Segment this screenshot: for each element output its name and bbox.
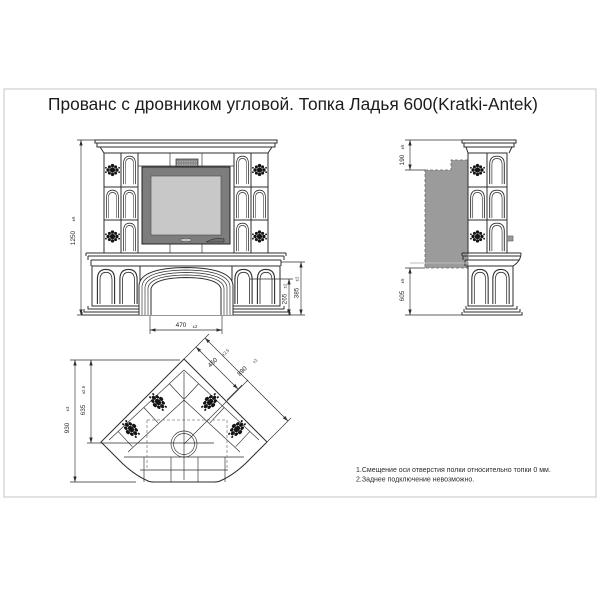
- side-lower-body: [462, 266, 522, 315]
- dim-value: 470: [176, 322, 187, 329]
- dim-value: 1250: [70, 230, 77, 245]
- dim-value: 265: [282, 293, 289, 304]
- front-lower-body: [82, 266, 290, 315]
- rosette-icon: [252, 164, 267, 176]
- side-crown-molding: [462, 140, 516, 153]
- front-crown-molding: [95, 140, 277, 153]
- dim-value: 930: [64, 422, 71, 433]
- note-line: 1.Смещение оси отверстия полки относител…: [356, 467, 551, 474]
- hidden-firebox-mass: [425, 160, 468, 268]
- rosette-icon: [252, 230, 267, 242]
- dim-value: 385: [294, 287, 301, 298]
- dim-arch-springer: 265 ±2: [250, 279, 293, 315]
- dim-value: 190: [399, 154, 406, 165]
- arch-niche-icon: [123, 223, 135, 251]
- dim-front-height: 1250 ±5: [70, 140, 95, 315]
- notes-block: 1.Смещение оси отверстия полки относител…: [356, 467, 551, 484]
- arch-niche-icon: [235, 269, 252, 304]
- mantel-shelf: [86, 253, 286, 266]
- dim-base-height: 605 ±5: [399, 268, 462, 315]
- rosette-icon: [105, 164, 120, 176]
- dim-tolerance: ±2: [251, 357, 258, 364]
- dim-tolerance: ±2: [193, 324, 198, 329]
- arch-niche-icon: [120, 269, 137, 304]
- dim-tolerance: ±3: [65, 406, 70, 411]
- side-upper-column: [468, 153, 513, 253]
- side-view: 190 ±5 605 ±5: [399, 140, 522, 315]
- dim-tolerance: ±2.5: [81, 385, 86, 394]
- arch-niche-icon: [106, 190, 118, 218]
- vent-grille: [176, 159, 198, 167]
- dim-tolerance: ±2.5: [221, 347, 231, 357]
- arch-niche-icon: [257, 269, 274, 304]
- firebox: [142, 167, 230, 244]
- dim-value: 635: [80, 404, 87, 415]
- side-handle-tab: [507, 236, 513, 241]
- dim-value: 450: [207, 356, 220, 369]
- arch-niche-icon: [123, 156, 135, 184]
- dim-facade-width: 890 ±2: [205, 338, 291, 442]
- firebox-glass: [151, 176, 221, 235]
- side-shelf: [462, 253, 521, 266]
- dim-tolerance: ±5: [400, 144, 405, 149]
- plan-view: 930 ±3 635 ±2.5 450 ±2.5 890 ±2: [64, 334, 291, 482]
- firebox-handle: [180, 238, 192, 241]
- dim-value: 890: [236, 365, 249, 378]
- dim-tolerance: ±5: [400, 278, 405, 283]
- arch-niche-icon: [123, 190, 135, 218]
- drawing-title: Прованс с дровником угловой. Топка Ладья…: [48, 94, 538, 114]
- flue-axis-line: [184, 380, 248, 444]
- rosette-icon: [105, 230, 120, 242]
- arch-niche-icon: [253, 190, 265, 218]
- arch-niche-icon: [236, 223, 248, 251]
- arch-niche-icon: [472, 269, 488, 304]
- arch-niche-icon: [493, 269, 509, 304]
- arch-niche-icon: [236, 190, 248, 218]
- dim-tolerance: ±2: [295, 276, 300, 281]
- dim-tolerance: ±2: [283, 283, 288, 288]
- front-view: 1250 ±5 470 ±2 265 ±2 385 ±2: [70, 140, 305, 334]
- drawing-page: Прованс с дровником угловой. Топка Ладья…: [0, 0, 600, 600]
- dim-value: 605: [399, 290, 406, 301]
- arch-niche-icon: [97, 269, 114, 304]
- note-line: 2.Заднее подключение невозможно.: [356, 477, 474, 484]
- hidden-firebox-outline: [147, 420, 227, 470]
- fireplace-technical-drawing: Прованс с дровником угловой. Топка Ладья…: [0, 0, 600, 600]
- dim-opening-width: 470 ±2: [150, 316, 222, 334]
- dim-tolerance: ±5: [71, 216, 76, 221]
- arch-niche-icon: [236, 156, 248, 184]
